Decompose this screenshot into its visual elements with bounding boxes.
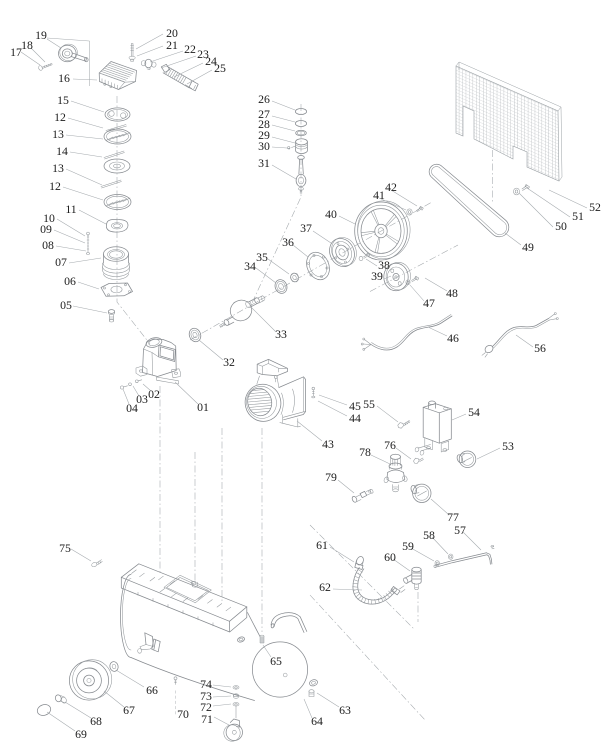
svg-text:14: 14	[56, 144, 68, 158]
svg-text:43: 43	[322, 437, 334, 451]
svg-text:58: 58	[423, 528, 435, 542]
svg-text:77: 77	[447, 510, 459, 524]
svg-text:35: 35	[256, 250, 268, 264]
svg-text:74: 74	[200, 677, 212, 691]
svg-text:07: 07	[55, 255, 67, 269]
svg-text:47: 47	[423, 296, 435, 310]
svg-text:55: 55	[363, 397, 375, 411]
svg-text:25: 25	[214, 61, 226, 75]
svg-text:40: 40	[325, 207, 337, 221]
svg-text:69: 69	[75, 727, 87, 741]
svg-text:37: 37	[300, 221, 312, 235]
svg-text:11: 11	[65, 202, 76, 216]
svg-text:61: 61	[316, 538, 328, 552]
svg-text:75: 75	[59, 541, 71, 555]
svg-text:65: 65	[270, 654, 282, 668]
svg-text:73: 73	[200, 689, 212, 703]
svg-text:30: 30	[258, 139, 270, 153]
svg-text:33: 33	[275, 327, 287, 341]
svg-text:31: 31	[258, 156, 270, 170]
svg-text:16: 16	[58, 71, 70, 85]
svg-text:48: 48	[446, 286, 458, 300]
svg-text:21: 21	[166, 38, 178, 52]
svg-text:08: 08	[42, 238, 54, 252]
svg-text:66: 66	[146, 683, 158, 697]
svg-text:71: 71	[201, 712, 213, 726]
svg-text:09: 09	[40, 222, 52, 236]
svg-text:12: 12	[49, 179, 61, 193]
svg-text:54: 54	[468, 405, 480, 419]
svg-text:52: 52	[589, 200, 601, 214]
svg-text:12: 12	[54, 110, 66, 124]
svg-text:64: 64	[311, 714, 323, 728]
svg-text:67: 67	[123, 703, 135, 717]
svg-text:15: 15	[57, 93, 69, 107]
svg-text:45: 45	[349, 399, 361, 413]
svg-text:62: 62	[319, 580, 331, 594]
svg-text:63: 63	[339, 703, 351, 717]
svg-text:79: 79	[325, 470, 337, 484]
svg-text:04: 04	[126, 401, 138, 415]
svg-text:39: 39	[371, 269, 383, 283]
svg-text:42: 42	[385, 180, 397, 194]
svg-text:59: 59	[402, 539, 414, 553]
svg-text:49: 49	[522, 240, 534, 254]
svg-text:44: 44	[349, 411, 361, 425]
svg-text:13: 13	[52, 161, 64, 175]
svg-text:13: 13	[52, 127, 64, 141]
svg-text:51: 51	[572, 209, 584, 223]
svg-text:36: 36	[282, 235, 294, 249]
svg-text:50: 50	[555, 219, 567, 233]
svg-text:32: 32	[223, 355, 235, 369]
svg-text:60: 60	[384, 550, 396, 564]
svg-text:26: 26	[258, 92, 270, 106]
svg-text:53: 53	[502, 439, 514, 453]
svg-text:57: 57	[454, 523, 466, 537]
svg-text:78: 78	[359, 445, 371, 459]
svg-text:46: 46	[447, 331, 459, 345]
svg-text:41: 41	[373, 188, 385, 202]
svg-text:05: 05	[60, 298, 72, 312]
svg-text:01: 01	[197, 400, 209, 414]
svg-text:70: 70	[177, 707, 189, 721]
svg-text:19: 19	[35, 28, 47, 42]
svg-text:68: 68	[90, 714, 102, 728]
svg-text:56: 56	[534, 341, 546, 355]
svg-text:06: 06	[64, 274, 76, 288]
svg-text:34: 34	[244, 259, 256, 273]
svg-text:18: 18	[21, 38, 33, 52]
svg-text:22: 22	[184, 42, 196, 56]
svg-text:76: 76	[384, 438, 396, 452]
svg-text:02: 02	[148, 387, 160, 401]
